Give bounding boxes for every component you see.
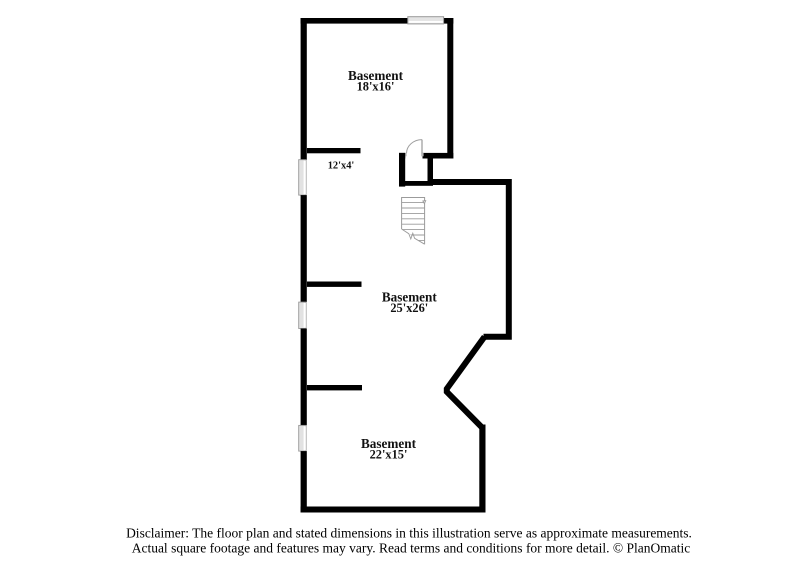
svg-text:Disclaimer: The floor plan and: Disclaimer: The floor plan and stated di… (126, 525, 692, 540)
svg-text:12'x4': 12'x4' (328, 160, 355, 171)
svg-text:22'x15': 22'x15' (370, 448, 408, 462)
svg-text:18'x16': 18'x16' (357, 79, 395, 93)
svg-text:Actual square footage and feat: Actual square footage and features may v… (132, 540, 691, 555)
svg-text:25'x26': 25'x26' (390, 301, 428, 315)
